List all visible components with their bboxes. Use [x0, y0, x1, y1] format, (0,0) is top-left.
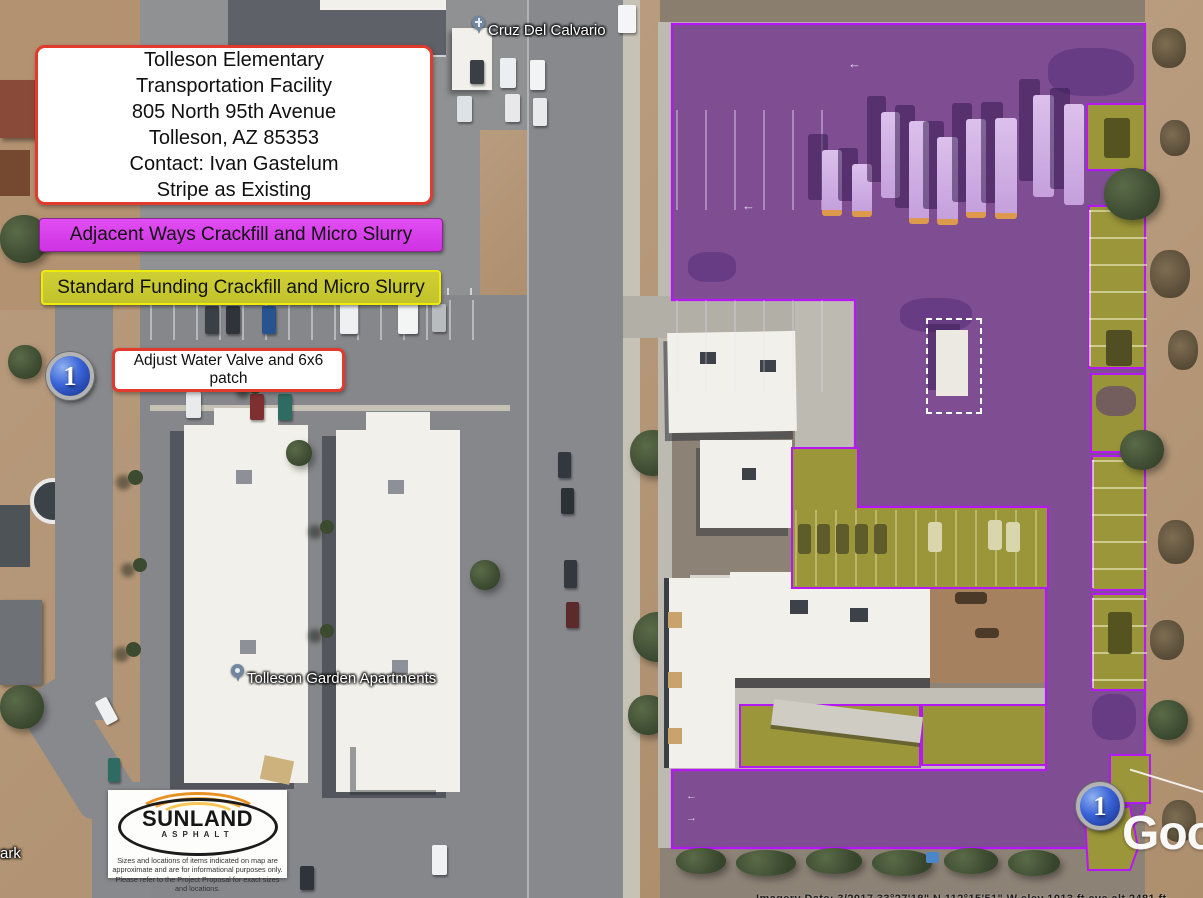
- car: [300, 866, 314, 890]
- tree: [0, 685, 44, 729]
- google-watermark-text: Google: [1122, 807, 1203, 860]
- legend-adjacent-ways-label: Adjacent Ways Crackfill and Micro Slurry: [70, 224, 412, 246]
- status-bar-fragment: Imagery Date: 3/2017 33°27'18" N 112°15'…: [756, 888, 1203, 898]
- school-bus: [852, 164, 872, 217]
- palm-tree: [133, 558, 147, 572]
- marker-number: 1: [1093, 791, 1107, 822]
- car: [398, 300, 418, 334]
- small-building: [356, 742, 442, 790]
- tree-shadow: [688, 252, 736, 282]
- palm-tree: [320, 520, 334, 534]
- legend-standard-funding[interactable]: Standard Funding Crackfill and Micro Slu…: [41, 270, 441, 305]
- pin-dot-icon: [235, 668, 240, 673]
- hedge-tree: [676, 848, 726, 874]
- pavement-arrow: ←: [686, 790, 697, 802]
- tree: [8, 345, 42, 379]
- shrub: [1160, 120, 1190, 156]
- palm-tree: [126, 642, 141, 657]
- parked-vehicle: [1104, 118, 1130, 158]
- car: [226, 306, 240, 334]
- shrub: [1168, 330, 1198, 370]
- house-roof: [0, 150, 30, 196]
- car: [558, 452, 571, 478]
- status-bar-text: Imagery Date: 3/2017 33°27'18" N 112°15'…: [756, 893, 1203, 898]
- car: [186, 392, 201, 418]
- parked-vehicle: [1108, 612, 1132, 654]
- car: [561, 488, 574, 514]
- house-roof: [0, 505, 30, 567]
- hedge-tree: [1008, 850, 1060, 876]
- car: [108, 758, 120, 782]
- tree-shadow: [1096, 386, 1136, 416]
- hedge-tree: [736, 850, 796, 876]
- school-bus: [1033, 95, 1054, 197]
- water-valve-callout[interactable]: Adjust Water Valve and 6x6 patch: [112, 348, 345, 392]
- school-bus: [909, 121, 929, 224]
- house-roof: [0, 80, 36, 138]
- edge-label-fragment: ark: [0, 845, 21, 862]
- church-pin[interactable]: [472, 16, 485, 29]
- church-label[interactable]: Cruz Del Calvario: [488, 22, 606, 39]
- tree: [1148, 700, 1188, 740]
- google-watermark: Google: [1122, 806, 1203, 872]
- shrub: [1150, 250, 1190, 298]
- pavement-arrow: ←: [848, 56, 861, 71]
- shrub: [1152, 28, 1186, 68]
- shrub: [1158, 520, 1194, 564]
- parked-car: [855, 524, 868, 554]
- car: [500, 58, 516, 88]
- car: [432, 304, 446, 332]
- house-roof: [0, 600, 42, 685]
- water-valve-text: Adjust Water Valve and 6x6 patch: [115, 352, 342, 388]
- school-bus: [1064, 104, 1084, 205]
- fuel-island-canopy: [936, 330, 968, 396]
- tree: [1104, 168, 1160, 220]
- car: [457, 96, 472, 122]
- car: [618, 5, 636, 33]
- apartments-pin[interactable]: [231, 664, 244, 677]
- parked-car: [988, 520, 1002, 550]
- school-bus: [822, 150, 842, 216]
- apartments-label[interactable]: Tolleson Garden Apartments: [247, 670, 436, 687]
- tree: [1120, 430, 1164, 470]
- car: [278, 394, 292, 420]
- logo-name: SUNLAND: [108, 806, 287, 832]
- car: [470, 60, 484, 84]
- cross-icon: [478, 18, 480, 27]
- legend-adjacent-ways[interactable]: Adjacent Ways Crackfill and Micro Slurry: [39, 218, 443, 252]
- tree-shadow: [1092, 694, 1136, 740]
- car: [250, 394, 264, 420]
- hedge-tree: [806, 848, 862, 874]
- car: [340, 302, 358, 334]
- logo-disclaimer: Sizes and locations of items indicated o…: [112, 856, 283, 894]
- car: [505, 94, 520, 122]
- marker-1-west[interactable]: 1: [46, 352, 94, 400]
- parked-car: [928, 522, 942, 552]
- roof-edge: [320, 0, 446, 10]
- car: [530, 60, 545, 90]
- standard-funding-playground-e: [922, 705, 1046, 765]
- legend-standard-funding-label: Standard Funding Crackfill and Micro Slu…: [57, 277, 425, 299]
- palm-tree: [128, 470, 143, 485]
- parked-car: [817, 524, 830, 554]
- pavement-arrow: →: [686, 812, 697, 824]
- strip-stall-lines: [1092, 460, 1147, 588]
- parked-car: [1006, 522, 1020, 552]
- car: [566, 602, 579, 628]
- school-bus: [966, 119, 986, 218]
- tree-shadow: [1048, 48, 1134, 96]
- blue-tarp: [926, 852, 939, 863]
- palm-tree: [320, 624, 334, 638]
- parked-car: [874, 524, 887, 554]
- car: [205, 306, 219, 334]
- bus-stall-lines: [676, 110, 824, 210]
- car: [533, 98, 547, 126]
- site-info-text: Tolleson Elementary Transportation Facil…: [130, 47, 339, 203]
- hedge-tree: [944, 848, 998, 874]
- pavement-arrow: ←: [742, 198, 755, 213]
- dirt-median: [480, 130, 528, 305]
- roof-unit: [240, 640, 256, 654]
- marker-1-southeast[interactable]: 1: [1076, 782, 1124, 830]
- roof-unit: [388, 480, 404, 494]
- car: [564, 560, 577, 588]
- car: [432, 845, 447, 875]
- roof-unit: [236, 470, 252, 484]
- tree: [286, 440, 312, 466]
- cross-icon: [475, 21, 482, 23]
- school-bus: [881, 112, 900, 198]
- site-info-callout[interactable]: Tolleson Elementary Transportation Facil…: [35, 45, 433, 205]
- bus-stall-lines: [676, 300, 826, 392]
- walkway: [150, 405, 510, 411]
- school-bus: [937, 137, 958, 225]
- school-bus: [995, 118, 1017, 219]
- car: [262, 306, 276, 334]
- shrub: [1150, 620, 1184, 660]
- tree: [470, 560, 500, 590]
- map-canvas[interactable]: ← ← ← → Cruz Del: [0, 0, 1203, 898]
- parked-car: [836, 524, 849, 554]
- hedge-tree: [872, 850, 932, 876]
- marker-number: 1: [63, 361, 77, 392]
- sunland-logo-box: SUNLAND ASPHALT Sizes and locations of i…: [108, 790, 287, 878]
- apartment-building-east-tab: [366, 412, 430, 432]
- parked-car: [798, 524, 811, 554]
- logo-sub: ASPHALT: [108, 830, 287, 839]
- apartment-building-west-tab: [214, 408, 278, 428]
- street-95th-ave: [527, 0, 627, 898]
- parked-vehicle: [1106, 330, 1132, 366]
